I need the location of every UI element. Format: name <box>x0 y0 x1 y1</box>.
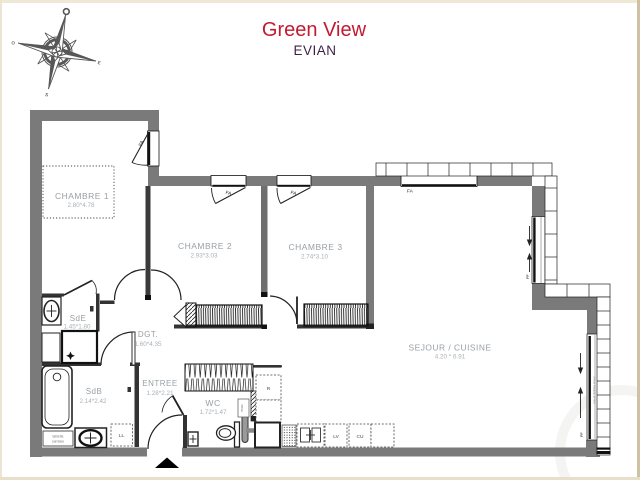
svg-text:1.45*1.80: 1.45*1.80 <box>64 324 91 331</box>
svg-text:CHAMBRE 3: CHAMBRE 3 <box>288 242 342 252</box>
svg-text:ENTREE: ENTREE <box>142 379 177 388</box>
svg-text:SEJOUR / CUISINE: SEJOUR / CUISINE <box>409 343 492 353</box>
svg-text:carrelee: carrelee <box>52 440 64 444</box>
svg-text:CHAMBRE 2: CHAMBRE 2 <box>178 241 232 251</box>
svg-text:DGT.: DGT. <box>138 330 158 339</box>
svg-text:CU: CU <box>357 434 364 440</box>
svg-text:tablette: tablette <box>52 435 63 439</box>
svg-text:1.60*4.35: 1.60*4.35 <box>135 341 162 348</box>
svg-text:EVIAN: EVIAN <box>293 43 336 58</box>
svg-text:FA: FA <box>407 189 414 195</box>
svg-text:evac: evac <box>240 404 244 411</box>
svg-text:Green View: Green View <box>262 19 367 41</box>
svg-text:saut 200m max: saut 200m max <box>592 376 597 403</box>
svg-text:PF: PF <box>526 273 530 279</box>
svg-text:R: R <box>267 386 271 392</box>
svg-text:2.74*3.10: 2.74*3.10 <box>301 254 328 261</box>
svg-text:CHAMBRE 1: CHAMBRE 1 <box>55 191 109 201</box>
svg-text:2.93*3.03: 2.93*3.03 <box>191 253 218 260</box>
svg-text:4.20 * 6.91: 4.20 * 6.91 <box>435 354 466 361</box>
svg-text:1.72*1.47: 1.72*1.47 <box>200 409 227 416</box>
svg-text:WC: WC <box>205 398 220 408</box>
svg-text:2.14*2.42: 2.14*2.42 <box>80 398 107 405</box>
svg-text:1.28*2.21: 1.28*2.21 <box>147 390 174 397</box>
svg-text:PF: PF <box>580 431 584 437</box>
svg-text:LL: LL <box>119 433 125 439</box>
svg-text:SdB: SdB <box>86 387 103 396</box>
svg-text:2.80*4.78: 2.80*4.78 <box>68 202 95 209</box>
svg-text:SdE: SdE <box>70 314 87 323</box>
svg-text:LV: LV <box>333 434 340 440</box>
